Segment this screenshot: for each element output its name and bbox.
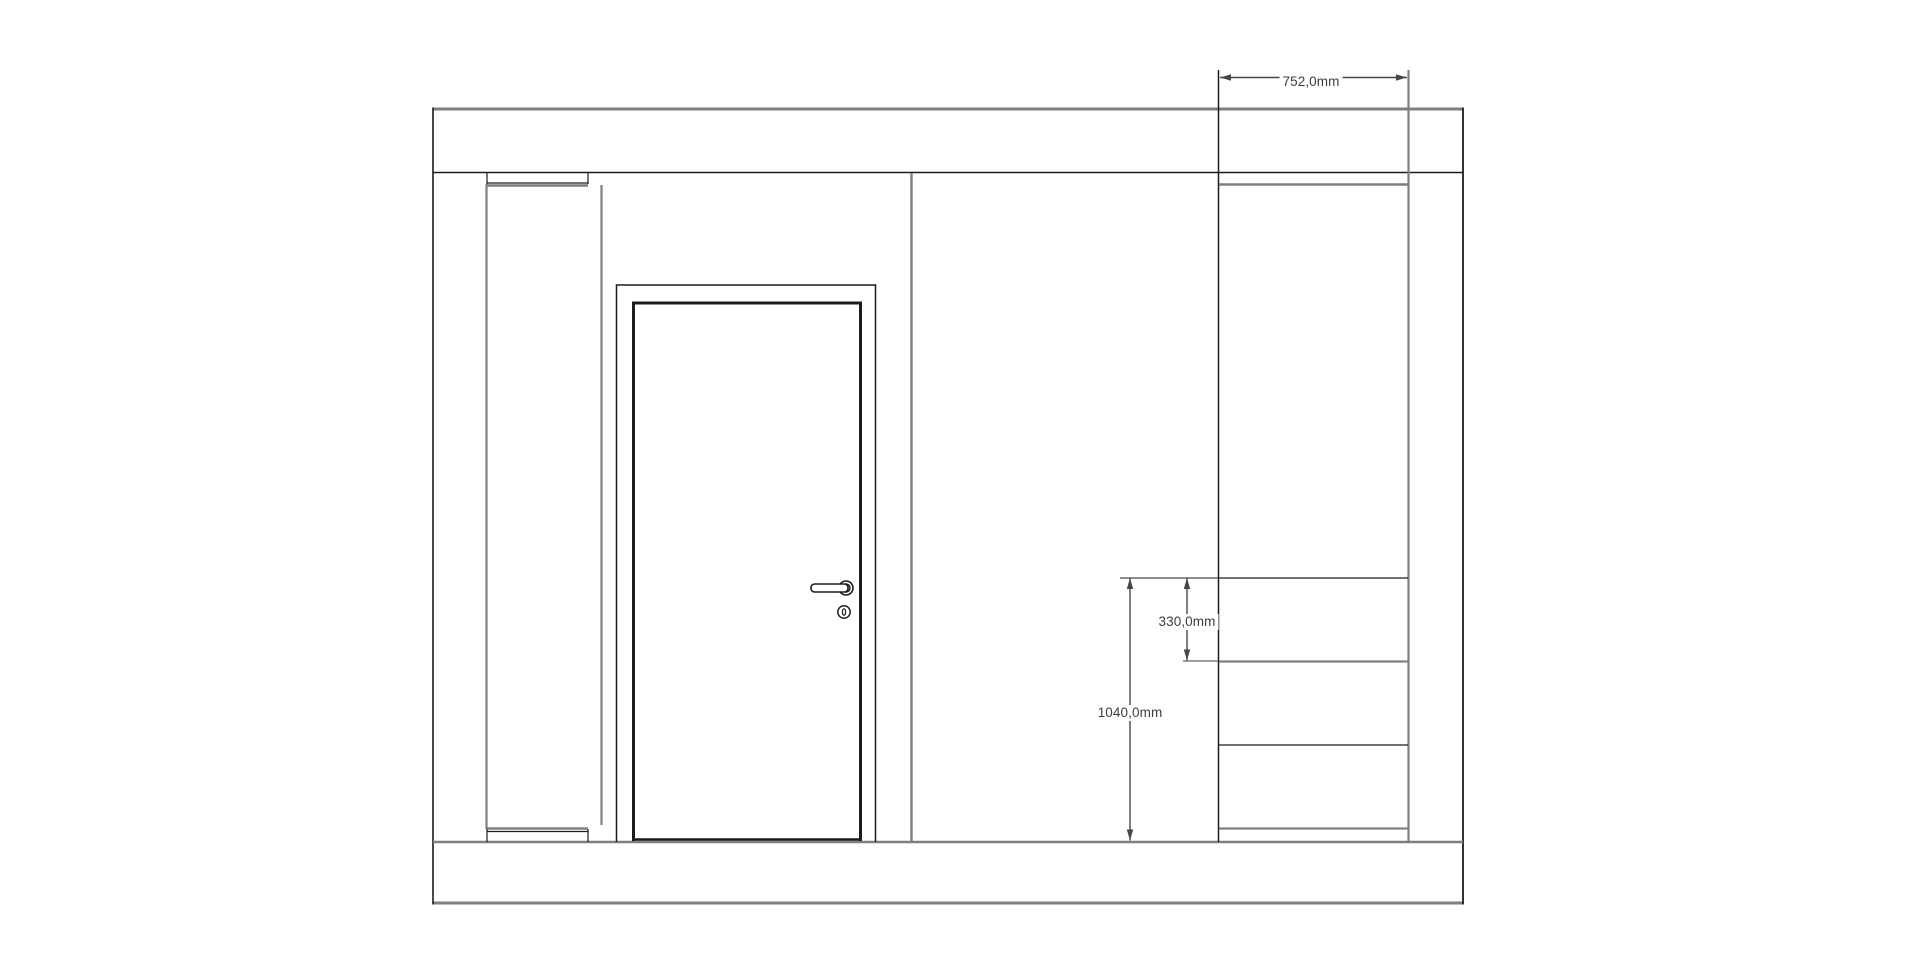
dim-arrow-top-drawers-height xyxy=(1127,578,1133,589)
dimension-label-cabinet-width: 752,0mm xyxy=(1280,74,1343,90)
door-handle-lever-icon xyxy=(811,584,848,592)
wall-elevation-drawing xyxy=(0,0,1920,954)
dim-arrow-left-cabinet-width xyxy=(1220,74,1231,80)
dimension-label-drawers-total-height: 1040,0mm xyxy=(1095,705,1166,721)
cad-drawing-canvas: 752,0mm 330,0mm 1040,0mm xyxy=(0,0,1920,954)
dim-arrow-right-cabinet-width xyxy=(1396,74,1407,80)
dim-arrow-top-drawer-height xyxy=(1184,578,1190,589)
dimension-label-drawer-height: 330,0mm xyxy=(1156,614,1219,630)
door-keyhole-icon xyxy=(838,606,850,618)
dim-arrow-bottom-drawer-height xyxy=(1184,650,1190,661)
dim-arrow-bottom-drawers-height xyxy=(1127,830,1133,841)
